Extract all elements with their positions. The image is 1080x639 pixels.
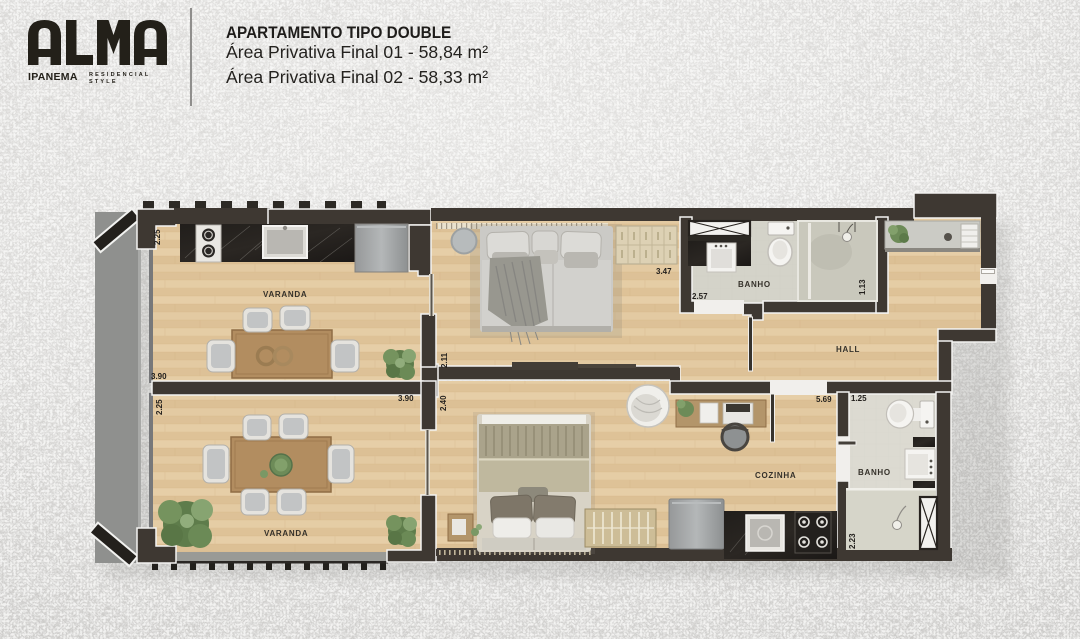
svg-text:2.11: 2.11 (440, 352, 449, 368)
svg-text:3.47: 3.47 (656, 267, 672, 276)
svg-text:1.13: 1.13 (858, 279, 867, 295)
svg-text:BANHO: BANHO (738, 280, 771, 289)
svg-text:2.57: 2.57 (692, 292, 708, 301)
svg-text:COZINHA: COZINHA (755, 471, 796, 480)
svg-text:2.25: 2.25 (155, 399, 164, 415)
svg-text:3.90: 3.90 (151, 372, 167, 381)
svg-text:VARANDA: VARANDA (264, 529, 308, 538)
svg-text:5.69: 5.69 (816, 395, 832, 404)
svg-text:HALL: HALL (836, 345, 860, 354)
svg-text:2.25: 2.25 (153, 229, 162, 245)
svg-text:1.25: 1.25 (851, 394, 867, 403)
svg-text:3.90: 3.90 (398, 394, 414, 403)
svg-text:2.23: 2.23 (848, 533, 857, 549)
svg-text:VARANDA: VARANDA (263, 290, 307, 299)
svg-text:2.40: 2.40 (439, 395, 448, 411)
svg-text:BANHO: BANHO (858, 468, 891, 477)
